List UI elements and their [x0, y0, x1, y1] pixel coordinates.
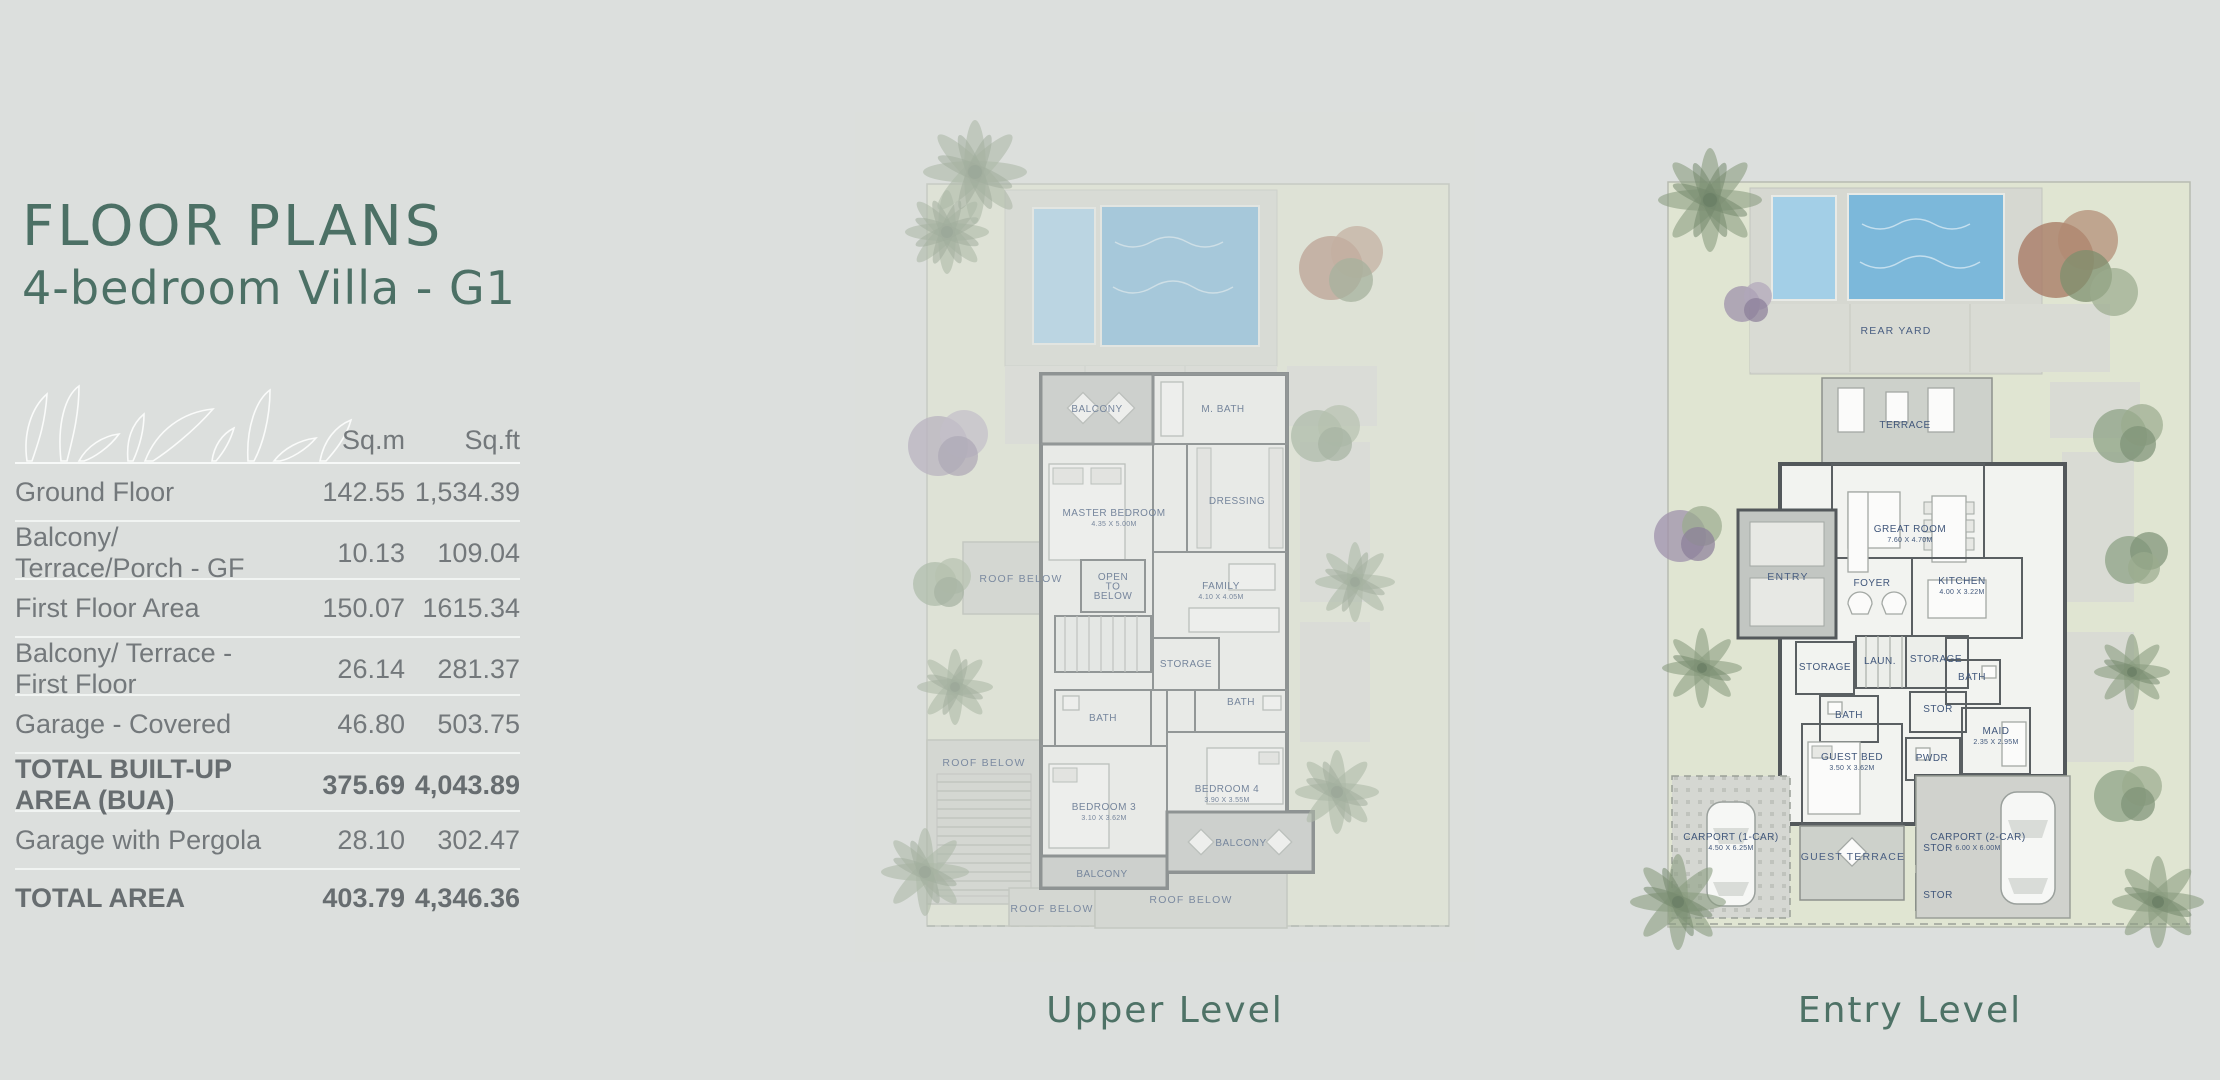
upper-level-caption: Upper Level	[855, 990, 1475, 1031]
upper-level-drawing: BALCONYM. BATHMASTER BEDROOM4.35 X 5.00M…	[855, 112, 1475, 962]
room-label: BALCONY	[1071, 404, 1122, 415]
column-header-sqm: Sq.m	[285, 425, 405, 456]
table-row: First Floor Area150.071615.34	[15, 578, 520, 636]
room-label: STOR	[1923, 704, 1953, 715]
room-label: STORAGE	[1160, 659, 1212, 670]
room-label: STOR	[1923, 843, 1953, 854]
room-label: GUEST TERRACE	[1801, 851, 1905, 863]
room-label: ROOF BELOW	[979, 573, 1062, 585]
room-label: BATH	[1089, 713, 1117, 724]
room-label: LAUN.	[1864, 656, 1896, 667]
entry-level-plan: REAR YARDTERRACEGREAT ROOM7.60 X 4.70MEN…	[1610, 112, 2210, 967]
room-label: BALCONY	[1215, 838, 1266, 849]
area-table-body: Ground Floor142.551,534.39Balcony/ Terra…	[15, 464, 520, 926]
page-header: FLOOR PLANS 4-bedroom Villa - G1	[22, 196, 516, 313]
room-label: STORAGE	[1910, 654, 1962, 665]
room-label: BEDROOM 33.10 X 3.62M	[1072, 802, 1137, 822]
upper-level-plan: BALCONYM. BATHMASTER BEDROOM4.35 X 5.00M…	[855, 112, 1475, 967]
table-row: TOTAL BUILT-UP AREA (BUA)375.694,043.89	[15, 752, 520, 810]
room-label: BATH	[1958, 672, 1986, 683]
area-table-header: Sq.m Sq.ft	[15, 384, 520, 464]
room-label: STOR	[1923, 890, 1953, 901]
entry-level-caption: Entry Level	[1610, 990, 2210, 1031]
room-label: KITCHEN4.00 X 3.22M	[1938, 576, 1985, 596]
room-label: M. BATH	[1201, 404, 1244, 415]
floor-plans-page: FLOOR PLANS 4-bedroom Villa - G1 Sq.m Sq…	[0, 0, 2220, 1080]
table-row: Balcony/ Terrace - First Floor26.14281.3…	[15, 636, 520, 694]
table-row: Garage with Pergola28.10302.47	[15, 810, 520, 868]
table-row: Ground Floor142.551,534.39	[15, 464, 520, 520]
room-label: BATH	[1227, 697, 1255, 708]
room-label: BATH	[1835, 710, 1863, 721]
room-label: ROOF BELOW	[942, 757, 1025, 769]
room-label: REAR YARD	[1860, 325, 1931, 337]
area-table: Sq.m Sq.ft Ground Floor142.551,534.39Bal…	[15, 384, 520, 926]
room-label: TERRACE	[1879, 420, 1930, 431]
room-label: ROOF BELOW	[1149, 894, 1232, 906]
room-label: GUEST BED3.50 X 3.62M	[1821, 752, 1883, 772]
room-label: ENTRY	[1767, 571, 1808, 583]
table-row: Garage - Covered46.80503.75	[15, 694, 520, 752]
room-label: FOYER	[1854, 578, 1891, 589]
table-row: Balcony/ Terrace/Porch - GF10.13109.04	[15, 520, 520, 578]
room-label: STORAGE	[1799, 662, 1851, 673]
page-title: FLOOR PLANS	[22, 196, 516, 259]
column-header-sqft: Sq.ft	[405, 425, 520, 456]
room-label: ROOF BELOW	[1010, 903, 1093, 915]
table-row: TOTAL AREA403.794,346.36	[15, 868, 520, 926]
room-label: DRESSING	[1209, 496, 1265, 507]
room-label: BALCONY	[1076, 869, 1127, 880]
room-label: PWDR	[1916, 753, 1949, 764]
page-subtitle: 4-bedroom Villa - G1	[22, 263, 516, 314]
entry-level-drawing: REAR YARDTERRACEGREAT ROOM7.60 X 4.70MEN…	[1610, 112, 2210, 962]
room-label: BEDROOM 43.90 X 3.55M	[1195, 784, 1260, 804]
room-label: FAMILY4.10 X 4.05M	[1198, 581, 1243, 601]
